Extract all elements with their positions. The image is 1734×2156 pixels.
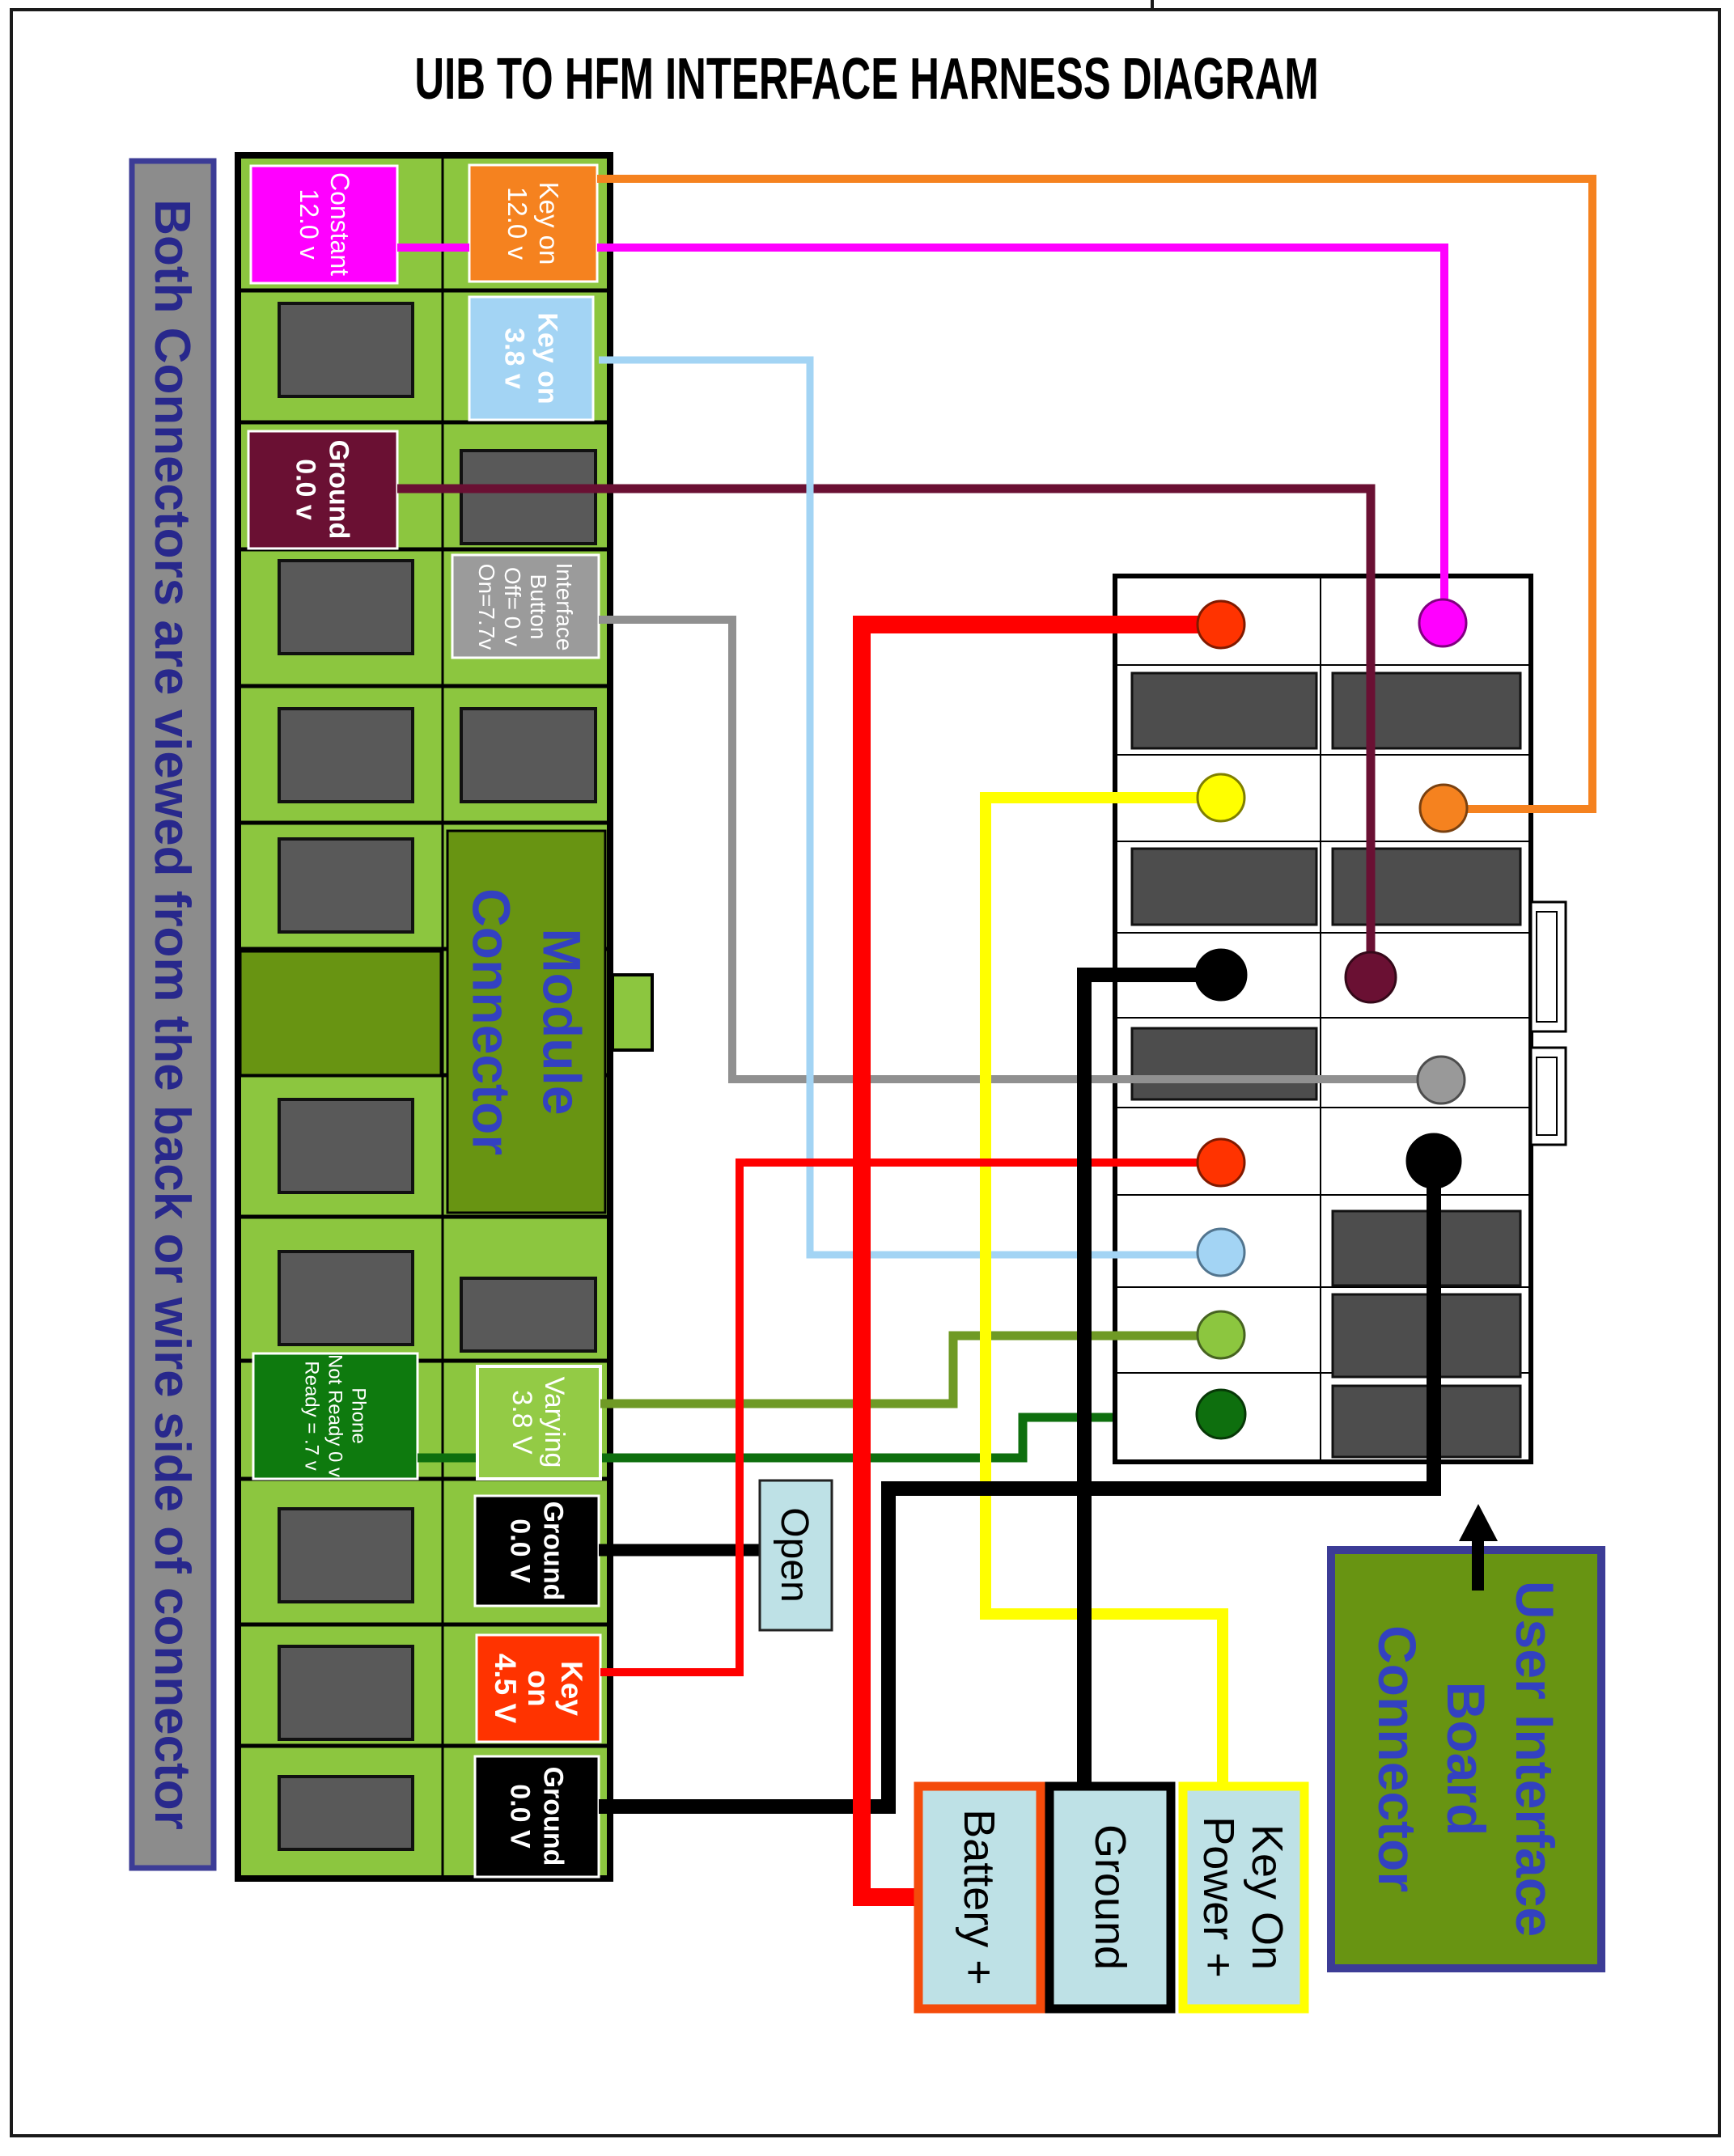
svg-text:Module: Module — [532, 929, 591, 1116]
svg-text:Not Ready 0 v: Not Ready 0 v — [324, 1354, 346, 1477]
svg-text:Connector: Connector — [461, 888, 521, 1155]
svg-text:Ground: Ground — [1086, 1824, 1134, 1970]
svg-text:Key On: Key On — [1243, 1824, 1291, 1970]
svg-text:Ready = .7 v: Ready = .7 v — [301, 1361, 323, 1470]
svg-text:4.5 V: 4.5 V — [489, 1654, 522, 1724]
svg-text:0.0 v: 0.0 v — [290, 459, 321, 520]
svg-text:User Interface: User Interface — [1505, 1581, 1565, 1937]
svg-text:Connector: Connector — [1367, 1625, 1427, 1892]
svg-text:12.0 v: 12.0 v — [295, 188, 324, 259]
svg-text:On=7.7v: On=7.7v — [474, 564, 499, 650]
svg-text:Ground: Ground — [324, 440, 354, 540]
svg-text:3.8 v: 3.8 v — [499, 328, 530, 389]
svg-text:Battery +: Battery + — [955, 1809, 1003, 1985]
svg-text:Phone: Phone — [348, 1387, 370, 1443]
svg-text:Varying: Varying — [539, 1377, 570, 1468]
svg-text:Board: Board — [1436, 1682, 1496, 1836]
svg-text:Key: Key — [555, 1661, 588, 1716]
svg-text:Open: Open — [773, 1507, 816, 1602]
svg-text:Off= 0 v: Off= 0 v — [500, 567, 525, 646]
svg-text:Both Connectors are viewed fro: Both Connectors are viewed from the back… — [144, 199, 200, 1829]
svg-text:Constant: Constant — [325, 172, 354, 276]
svg-text:Ground: Ground — [538, 1502, 569, 1601]
svg-text:Button: Button — [526, 574, 551, 640]
svg-text:0.0 V: 0.0 V — [505, 1784, 536, 1849]
svg-text:Ground: Ground — [538, 1767, 569, 1866]
svg-text:Power +: Power + — [1194, 1816, 1243, 1978]
svg-text:12.0 v: 12.0 v — [502, 187, 532, 260]
svg-text:Key on: Key on — [532, 312, 563, 404]
svg-text:0.0 V: 0.0 V — [505, 1519, 536, 1583]
svg-text:3.8 V: 3.8 V — [507, 1390, 537, 1455]
svg-text:Interface: Interface — [552, 563, 577, 651]
svg-text:on: on — [522, 1670, 555, 1706]
svg-text:Key on: Key on — [534, 182, 564, 265]
